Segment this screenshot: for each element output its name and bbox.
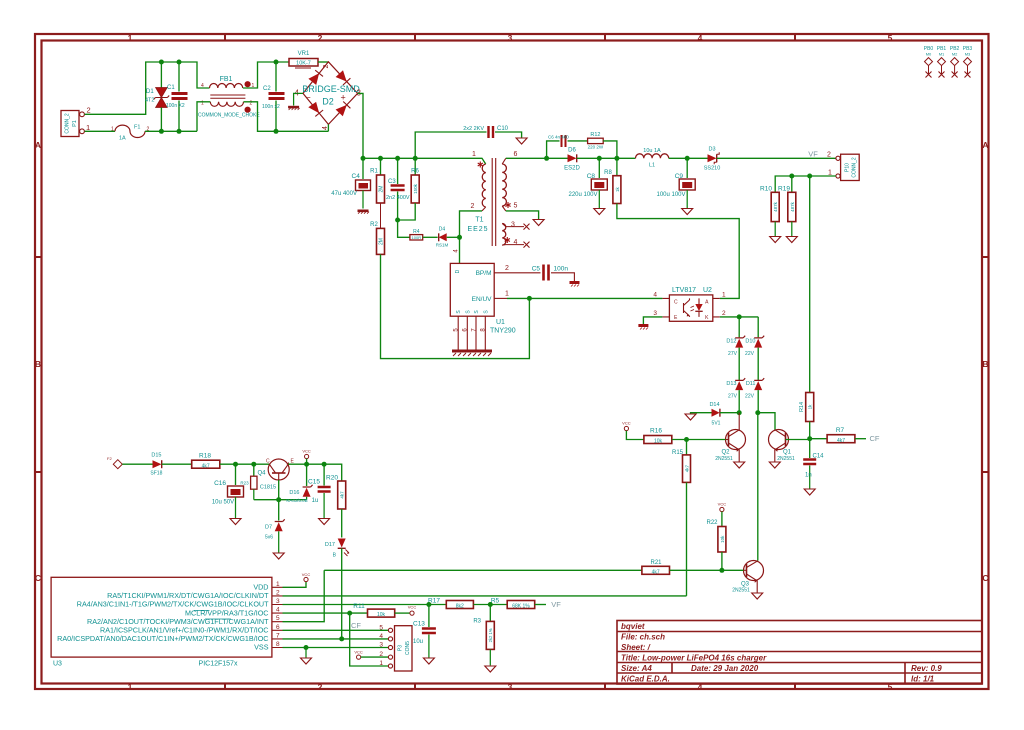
svg-text:CF: CF <box>351 621 361 630</box>
svg-text:2: 2 <box>379 651 383 658</box>
svg-text:Rev: 0.9: Rev: 0.9 <box>911 664 942 673</box>
svg-text:2: 2 <box>318 682 323 692</box>
svg-text:1k: 1k <box>808 404 813 410</box>
svg-text:RA0/ICSPDAT/AN0/DAC1OUT/C1IN+/: RA0/ICSPDAT/AN0/DAC1OUT/C1IN+/PWM2/TX/CK… <box>57 634 268 643</box>
svg-text:D13: D13 <box>726 381 736 387</box>
svg-text:D1: D1 <box>146 89 154 95</box>
svg-text:R15: R15 <box>672 450 684 456</box>
svg-text:C10: C10 <box>497 126 509 132</box>
svg-text:2M: 2M <box>379 238 385 245</box>
svg-text:L1: L1 <box>649 163 655 169</box>
svg-text:U1: U1 <box>496 319 505 326</box>
svg-text:4: 4 <box>698 33 703 43</box>
svg-text:2N2551: 2N2551 <box>777 456 795 462</box>
svg-text:2: 2 <box>318 33 323 43</box>
svg-text:2N2551: 2N2551 <box>732 588 750 594</box>
svg-text:C13: C13 <box>413 621 425 628</box>
svg-text:C9: C9 <box>675 173 684 180</box>
svg-text:C16: C16 <box>214 480 226 487</box>
svg-text:68K 1%: 68K 1% <box>512 604 530 610</box>
svg-text:C5: C5 <box>532 266 541 273</box>
svg-text:R11: R11 <box>353 603 365 610</box>
svg-text:R7: R7 <box>836 427 845 434</box>
svg-text:D3: D3 <box>708 147 715 153</box>
svg-text:100n X2: 100n X2 <box>166 103 185 109</box>
svg-text:bqviet: bqviet <box>621 622 645 631</box>
svg-text:487k: 487k <box>773 201 778 212</box>
svg-text:B: B <box>982 359 988 369</box>
svg-text:BRIDGE-SMD: BRIDGE-SMD <box>302 84 360 94</box>
svg-text:2: 2 <box>471 203 475 210</box>
svg-text:VCC: VCC <box>408 605 417 610</box>
svg-text:4k7: 4k7 <box>652 569 660 575</box>
svg-text:R19: R19 <box>778 186 790 193</box>
svg-text:Sheet: /: Sheet: / <box>621 643 651 652</box>
svg-text:10u 1A: 10u 1A <box>643 148 661 154</box>
svg-text:U3: U3 <box>53 661 62 668</box>
svg-text:2M: 2M <box>379 186 385 193</box>
svg-text:4: 4 <box>201 83 204 89</box>
svg-text:VF: VF <box>551 600 561 609</box>
svg-text:5: 5 <box>276 615 280 622</box>
svg-text:R22: R22 <box>706 520 718 526</box>
svg-text:C3: C3 <box>388 179 396 185</box>
svg-text:Q2: Q2 <box>721 450 730 456</box>
svg-text:150k: 150k <box>413 183 418 194</box>
svg-text:1: 1 <box>505 291 509 298</box>
svg-text:R4: R4 <box>413 229 420 235</box>
svg-text:6: 6 <box>276 624 280 631</box>
svg-text:CONN_2: CONN_2 <box>852 157 858 178</box>
svg-text:M1: M1 <box>939 52 945 57</box>
svg-text:C: C <box>674 300 678 306</box>
svg-text:U2: U2 <box>703 287 712 294</box>
svg-text:Size: A4: Size: A4 <box>621 664 652 673</box>
svg-text:VSS: VSS <box>254 643 269 652</box>
svg-text:4k7: 4k7 <box>837 438 845 444</box>
svg-text:D11: D11 <box>746 381 756 387</box>
svg-text:4: 4 <box>276 607 280 614</box>
svg-text:R16: R16 <box>650 428 662 435</box>
svg-text:3: 3 <box>511 222 515 229</box>
svg-text:D15: D15 <box>151 453 161 459</box>
svg-text:RS1M: RS1M <box>436 243 449 248</box>
svg-text:C: C <box>35 573 41 583</box>
svg-text:2k2 1%: 2k2 1% <box>488 628 493 642</box>
svg-text:3: 3 <box>508 33 513 43</box>
svg-text:4k7: 4k7 <box>340 491 345 499</box>
svg-text:4k7: 4k7 <box>202 463 210 469</box>
svg-text:47u 400V: 47u 400V <box>331 191 357 197</box>
svg-text:4T2: 4T2 <box>145 98 154 104</box>
svg-text:SF18: SF18 <box>150 471 162 477</box>
svg-text:8: 8 <box>276 641 280 648</box>
svg-text:C14: C14 <box>813 454 825 460</box>
svg-text:6: 6 <box>514 151 518 158</box>
svg-text:3: 3 <box>276 598 280 605</box>
svg-text:5v6: 5v6 <box>265 535 273 541</box>
svg-text:22V: 22V <box>745 394 755 400</box>
svg-text:2: 2 <box>323 64 330 68</box>
svg-text:D14: D14 <box>709 402 719 408</box>
svg-text:1: 1 <box>111 127 114 133</box>
svg-text:4: 4 <box>514 239 518 246</box>
svg-text:100n x2: 100n x2 <box>262 104 280 110</box>
svg-text:KA4J/5.0B: KA4J/5.0B <box>286 498 307 503</box>
svg-text:5: 5 <box>888 33 893 43</box>
svg-text:2: 2 <box>505 265 509 272</box>
svg-text:3: 3 <box>379 642 383 649</box>
svg-text:C6 4n 400: C6 4n 400 <box>548 135 569 140</box>
svg-text:8k2: 8k2 <box>456 604 464 610</box>
svg-text:2: 2 <box>276 589 280 596</box>
svg-text:VCC: VCC <box>718 502 727 507</box>
svg-text:PIC12F157x: PIC12F157x <box>199 661 238 668</box>
svg-text:M3: M3 <box>965 52 971 57</box>
svg-text:−: − <box>306 93 311 103</box>
svg-text:TNY290: TNY290 <box>490 328 516 335</box>
svg-text:EN/UV: EN/UV <box>472 296 493 303</box>
svg-text:COMMON_MODE_CHOKE: COMMON_MODE_CHOKE <box>198 113 260 119</box>
svg-text:27V: 27V <box>728 351 738 357</box>
svg-text:D: D <box>455 269 461 273</box>
svg-text:D10: D10 <box>745 339 755 345</box>
svg-text:4k7: 4k7 <box>685 464 690 472</box>
svg-text:2: 2 <box>722 310 726 317</box>
svg-text:D4: D4 <box>439 227 446 233</box>
svg-text:2: 2 <box>87 106 91 115</box>
svg-text:1: 1 <box>379 660 383 667</box>
svg-text:Q4: Q4 <box>257 471 266 477</box>
svg-text:27V: 27V <box>728 394 738 400</box>
svg-text:File: ch.sch: File: ch.sch <box>621 633 665 642</box>
svg-text:10u 50V: 10u 50V <box>212 500 234 506</box>
svg-text:1n: 1n <box>805 473 812 479</box>
svg-text:C: C <box>266 459 270 465</box>
svg-text:100n: 100n <box>554 266 569 273</box>
svg-text:R18: R18 <box>199 453 211 460</box>
svg-text:22V: 22V <box>745 351 755 357</box>
svg-text:Date: 29 Jan 2020: Date: 29 Jan 2020 <box>691 664 759 673</box>
svg-text:A: A <box>982 140 988 150</box>
svg-text:VCC: VCC <box>354 650 363 655</box>
svg-text:10k: 10k <box>654 439 663 445</box>
svg-text:1: 1 <box>722 292 726 299</box>
svg-text:R3: R3 <box>473 619 481 625</box>
svg-text:FB1: FB1 <box>220 76 233 83</box>
svg-text:CON5: CON5 <box>405 641 411 655</box>
svg-text:R21: R21 <box>650 560 662 566</box>
svg-text:2n2 400V: 2n2 400V <box>386 195 410 201</box>
svg-text:F1: F1 <box>134 125 140 131</box>
svg-text:P1: P1 <box>72 120 78 127</box>
svg-text:R8: R8 <box>604 170 612 176</box>
svg-text:C15: C15 <box>308 479 320 486</box>
svg-text:1: 1 <box>128 33 133 43</box>
svg-text:VF: VF <box>808 150 818 159</box>
svg-text:3: 3 <box>508 682 513 692</box>
svg-text:F2: F2 <box>107 456 112 461</box>
svg-text:BP/M: BP/M <box>476 270 492 277</box>
svg-text:R10: R10 <box>760 186 772 193</box>
svg-text:7: 7 <box>276 632 280 639</box>
svg-text:2x2 2KV: 2x2 2KV <box>463 126 484 132</box>
svg-text:R12: R12 <box>590 132 600 138</box>
svg-text:B: B <box>35 359 41 369</box>
svg-text:P10: P10 <box>845 163 851 172</box>
svg-text:VR1: VR1 <box>298 51 310 57</box>
svg-text:D16: D16 <box>289 490 299 496</box>
svg-text:Q1: Q1 <box>783 450 792 456</box>
svg-text:EE25: EE25 <box>467 226 488 233</box>
svg-text:A: A <box>35 140 41 150</box>
svg-text:5: 5 <box>514 203 518 210</box>
svg-text:10k: 10k <box>377 612 386 618</box>
svg-text:2: 2 <box>827 152 831 159</box>
svg-text:C: C <box>982 573 988 583</box>
svg-text:M0: M0 <box>926 52 932 57</box>
svg-text:M2: M2 <box>952 52 958 57</box>
svg-text:LTV817: LTV817 <box>672 287 696 294</box>
svg-text:3: 3 <box>653 310 657 317</box>
svg-text:SS210: SS210 <box>704 166 721 172</box>
svg-text:C1: C1 <box>167 85 175 91</box>
svg-text:1A: 1A <box>119 136 126 142</box>
svg-text:1u: 1u <box>312 498 319 504</box>
svg-text:10K-7: 10K-7 <box>296 61 311 67</box>
svg-text:R23: R23 <box>240 481 249 486</box>
svg-text:220u 100V: 220u 100V <box>568 192 597 198</box>
svg-text:R6: R6 <box>411 169 419 175</box>
svg-text:KiCad E.D.A.: KiCad E.D.A. <box>621 675 670 684</box>
svg-text:C2: C2 <box>263 86 271 92</box>
svg-text:T1: T1 <box>475 217 483 224</box>
svg-text:4: 4 <box>653 292 657 299</box>
svg-text:VCC: VCC <box>622 421 631 426</box>
svg-text:D7: D7 <box>265 525 272 531</box>
svg-text:+: + <box>341 93 346 103</box>
svg-text:100u 100V: 100u 100V <box>656 192 685 198</box>
svg-text:R20: R20 <box>326 475 338 482</box>
svg-text:1k: 1k <box>615 186 620 192</box>
svg-text:ES2D: ES2D <box>564 166 580 172</box>
svg-text:R1: R1 <box>370 169 378 175</box>
svg-text:1: 1 <box>128 682 133 692</box>
svg-text:R14: R14 <box>799 402 805 412</box>
svg-text:10u: 10u <box>413 639 423 645</box>
svg-text:5: 5 <box>379 625 383 632</box>
svg-text:C4: C4 <box>352 173 361 180</box>
svg-text:1: 1 <box>276 581 280 588</box>
svg-text:C1815: C1815 <box>260 485 276 491</box>
svg-text:D6: D6 <box>568 148 576 154</box>
svg-text:D17: D17 <box>325 542 335 548</box>
svg-text:220 2W: 220 2W <box>588 145 604 150</box>
svg-text:Id: 1/1: Id: 1/1 <box>911 675 935 684</box>
svg-text:VCC: VCC <box>302 572 311 577</box>
svg-text:P3: P3 <box>398 645 404 651</box>
svg-text:VCC: VCC <box>302 449 311 454</box>
svg-text:C8: C8 <box>587 173 596 180</box>
svg-text:5V1: 5V1 <box>712 421 721 427</box>
svg-text:R2: R2 <box>370 222 378 228</box>
svg-text:4: 4 <box>379 633 383 640</box>
svg-text:D2: D2 <box>322 97 334 107</box>
svg-text:2N2551: 2N2551 <box>715 456 733 462</box>
svg-text:1: 1 <box>472 151 476 158</box>
svg-text:Title: Low-power LiFePO4 16s c: Title: Low-power LiFePO4 16s charger <box>621 654 767 663</box>
svg-text:D12: D12 <box>726 339 736 345</box>
svg-text:CONN_2: CONN_2 <box>65 113 71 134</box>
svg-text:100R: 100R <box>412 235 422 240</box>
svg-text:10k: 10k <box>720 535 725 543</box>
svg-text:CF: CF <box>870 434 880 443</box>
svg-text:487k: 487k <box>790 201 795 212</box>
